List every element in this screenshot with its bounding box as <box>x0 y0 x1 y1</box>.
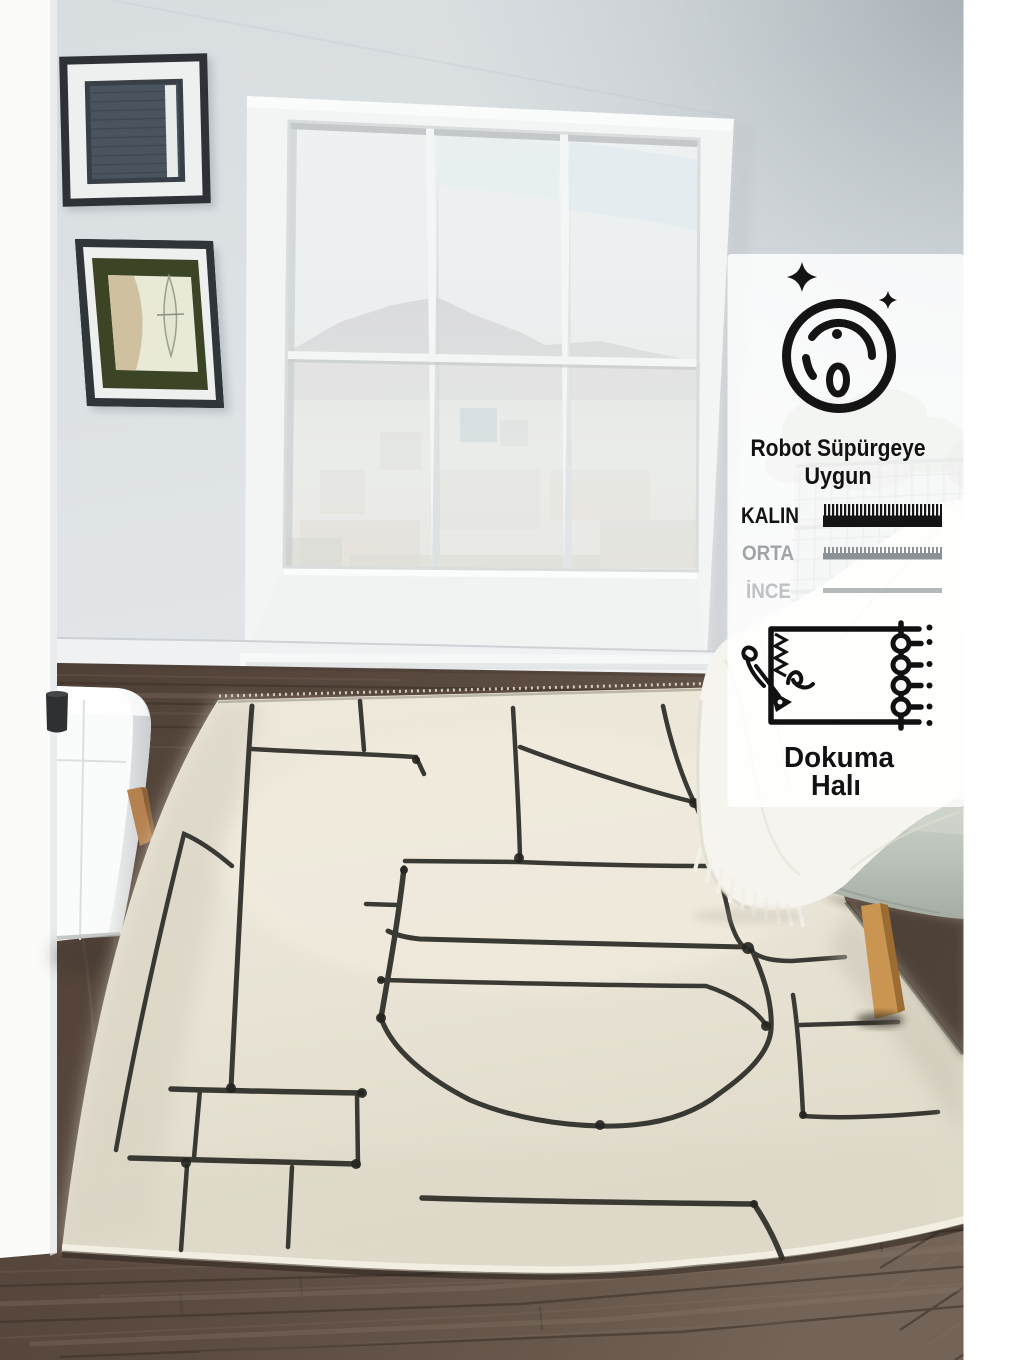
svg-text:KALIN: KALIN <box>741 503 799 528</box>
svg-text:Halı: Halı <box>811 770 861 802</box>
svg-text:Uygun: Uygun <box>805 463 872 490</box>
svg-text:İNCE: İNCE <box>746 580 791 603</box>
svg-text:Robot Süpürgeye: Robot Süpürgeye <box>751 435 926 462</box>
svg-text:ORTA: ORTA <box>742 542 794 565</box>
